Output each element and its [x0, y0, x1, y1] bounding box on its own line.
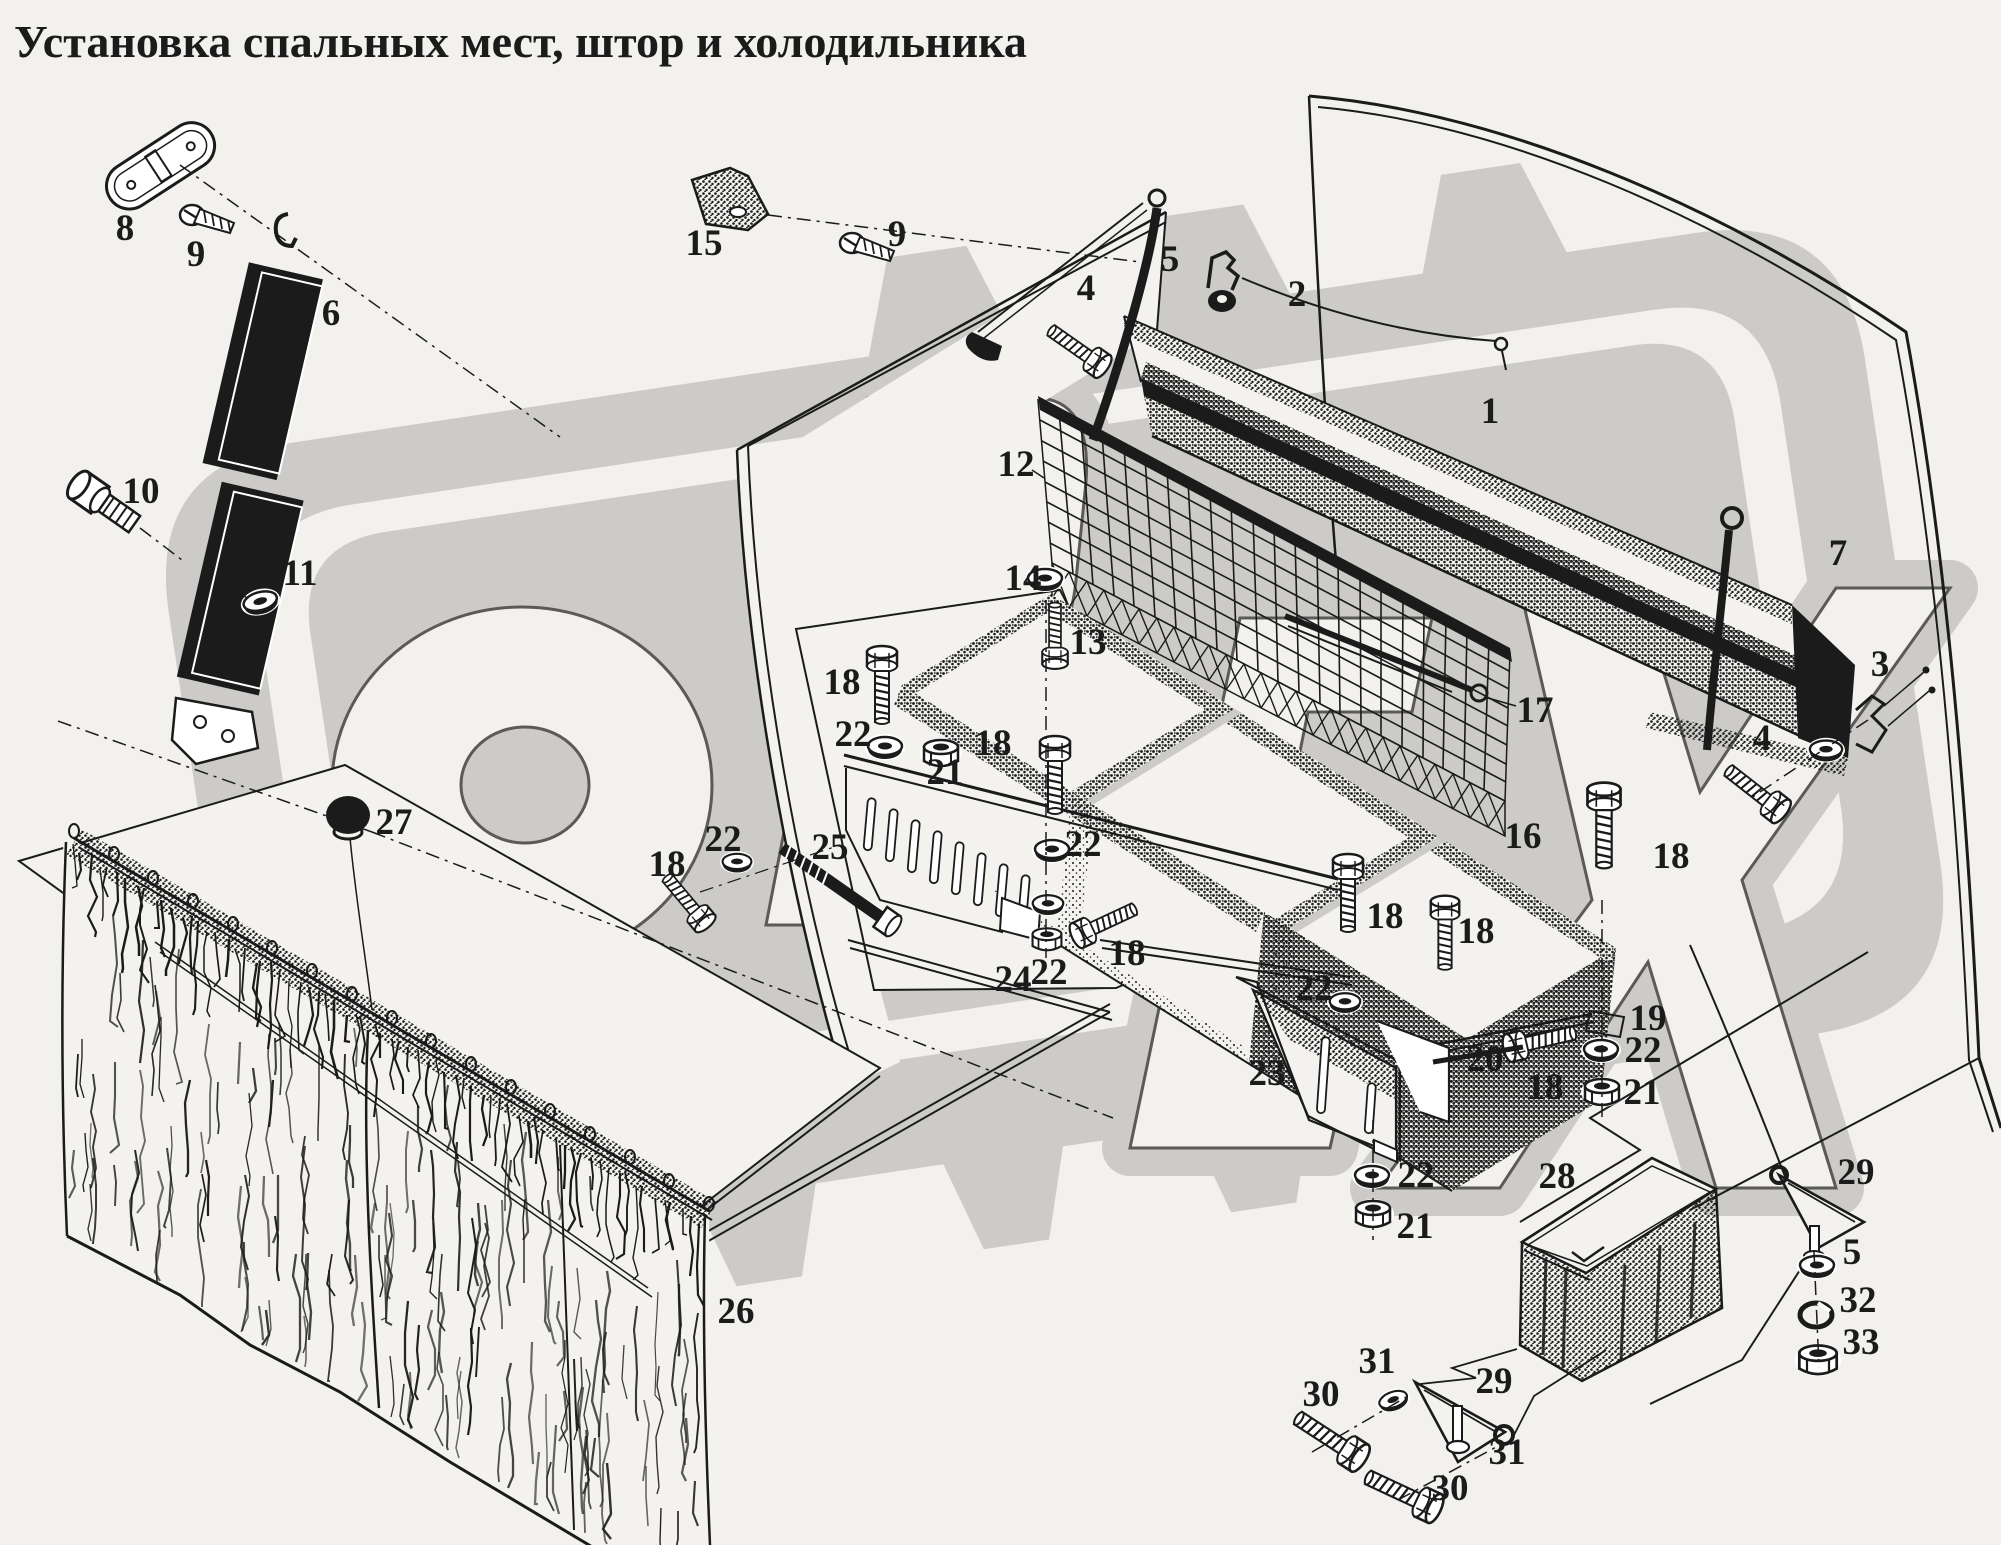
svg-text:21: 21 [1397, 1206, 1434, 1247]
svg-text:23: 23 [1249, 1053, 1286, 1094]
svg-text:10: 10 [123, 471, 160, 512]
svg-text:24: 24 [995, 959, 1032, 1000]
svg-text:14: 14 [1005, 558, 1042, 599]
svg-text:26: 26 [718, 1291, 755, 1332]
svg-text:5: 5 [1818, 689, 1837, 730]
svg-text:25: 25 [812, 827, 849, 868]
svg-text:13: 13 [1070, 622, 1107, 663]
svg-text:5: 5 [1161, 239, 1180, 280]
svg-text:11: 11 [283, 553, 318, 594]
svg-text:4: 4 [1077, 268, 1096, 309]
svg-text:9: 9 [888, 214, 907, 255]
svg-text:32: 32 [1840, 1280, 1877, 1321]
svg-text:31: 31 [1489, 1432, 1526, 1473]
svg-text:8: 8 [116, 208, 135, 249]
svg-text:18: 18 [1109, 933, 1146, 974]
svg-text:33: 33 [1843, 1322, 1880, 1363]
svg-text:31: 31 [1359, 1341, 1396, 1382]
svg-text:30: 30 [1432, 1468, 1469, 1509]
svg-text:22: 22 [1031, 952, 1068, 993]
svg-text:22: 22 [1625, 1030, 1662, 1071]
svg-text:5: 5 [1843, 1232, 1862, 1273]
svg-text:1: 1 [1481, 391, 1500, 432]
svg-text:22: 22 [1065, 824, 1102, 865]
svg-text:17: 17 [1517, 690, 1554, 731]
svg-text:21: 21 [927, 752, 964, 793]
svg-text:29: 29 [1838, 1152, 1875, 1193]
svg-text:21: 21 [1624, 1072, 1661, 1113]
svg-text:7: 7 [1829, 533, 1848, 574]
svg-text:22: 22 [705, 819, 742, 860]
svg-text:15: 15 [686, 223, 723, 264]
svg-text:27: 27 [376, 802, 413, 843]
svg-text:18: 18 [824, 662, 861, 703]
svg-text:3: 3 [1871, 644, 1890, 685]
svg-text:6: 6 [322, 293, 341, 334]
svg-text:9: 9 [187, 234, 206, 275]
svg-text:18: 18 [1527, 1067, 1564, 1108]
svg-text:20: 20 [1467, 1039, 1504, 1080]
svg-text:4: 4 [1753, 718, 1772, 759]
svg-text:18: 18 [1653, 836, 1690, 877]
svg-text:16: 16 [1505, 816, 1542, 857]
svg-text:22: 22 [1398, 1155, 1435, 1196]
svg-text:29: 29 [1476, 1361, 1513, 1402]
svg-text:22: 22 [1296, 968, 1333, 1009]
svg-text:18: 18 [649, 844, 686, 885]
svg-text:2: 2 [1288, 274, 1307, 315]
svg-text:30: 30 [1303, 1374, 1340, 1415]
svg-text:22: 22 [835, 714, 872, 755]
svg-text:18: 18 [975, 723, 1012, 764]
svg-text:Установка спальных мест, штор: Установка спальных мест, штор и холодиль… [14, 16, 1027, 67]
svg-text:28: 28 [1539, 1156, 1576, 1197]
svg-text:18: 18 [1458, 911, 1495, 952]
svg-text:12: 12 [998, 444, 1035, 485]
svg-text:18: 18 [1367, 896, 1404, 937]
